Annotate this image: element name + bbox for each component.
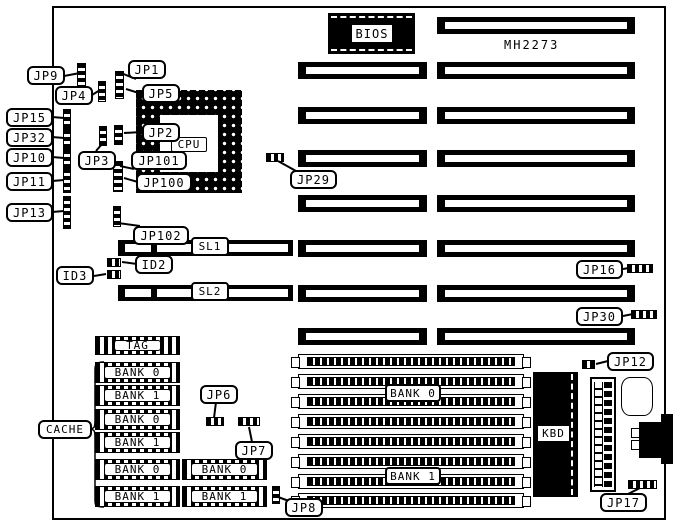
callout-jp10: JP10 [6,148,53,167]
callout-id2: ID2 [135,255,173,274]
callout-jp9: JP9 [27,66,65,85]
leader-jp7 [249,427,252,442]
memory-bank1-label: BANK 1 [385,467,441,485]
callout-jp3: JP3 [78,151,116,170]
leader-jp15 [52,117,64,118]
callout-jp6: JP6 [200,385,238,404]
leader-jp2 [124,132,142,133]
callout-jp11: JP11 [6,172,53,191]
callout-jp101: JP101 [131,151,187,170]
leader-jp30 [623,314,633,316]
callout-jp2: JP2 [142,123,180,142]
leader-jp4 [92,90,100,95]
callout-jp100: JP100 [136,173,192,192]
callout-jp1: JP1 [128,60,166,79]
callout-jp29: JP29 [290,170,337,189]
callout-jp102: JP102 [133,226,189,245]
slot-sl1-label: SL1 [191,237,229,256]
callout-jp13: JP13 [6,203,53,222]
callout-jp30: JP30 [576,307,623,326]
leader-id3 [94,274,106,276]
leader-jp5 [126,89,142,94]
callout-jp5: JP5 [142,84,180,103]
leader-jp10 [52,157,64,158]
memory-bank0-label: BANK 0 [385,384,441,402]
callout-jp12: JP12 [607,352,654,371]
leader-jp9 [64,73,80,76]
leader-jp16 [623,268,629,269]
callout-jp15: JP15 [6,108,53,127]
leader-jp13 [52,211,64,212]
callout-leader-lines [0,0,673,527]
callout-jp32: JP32 [6,128,53,147]
callout-jp8: JP8 [285,498,323,517]
callout-jp4: JP4 [55,86,93,105]
leader-jp3 [96,144,102,151]
leader-jp6 [214,402,216,418]
motherboard-diagram: SL1 SL2 BIOS MH2273 CPU TAG BANK 0 BANK … [0,0,673,527]
leader-jp11 [52,180,64,181]
callout-jp17: JP17 [600,493,647,512]
callout-jp7: JP7 [235,441,273,460]
callout-jp16: JP16 [576,260,623,279]
callout-id3: ID3 [56,266,94,285]
callout-cache: CACHE [38,420,92,439]
slot-sl2-label: SL2 [191,282,229,301]
leader-jp32 [52,137,64,138]
